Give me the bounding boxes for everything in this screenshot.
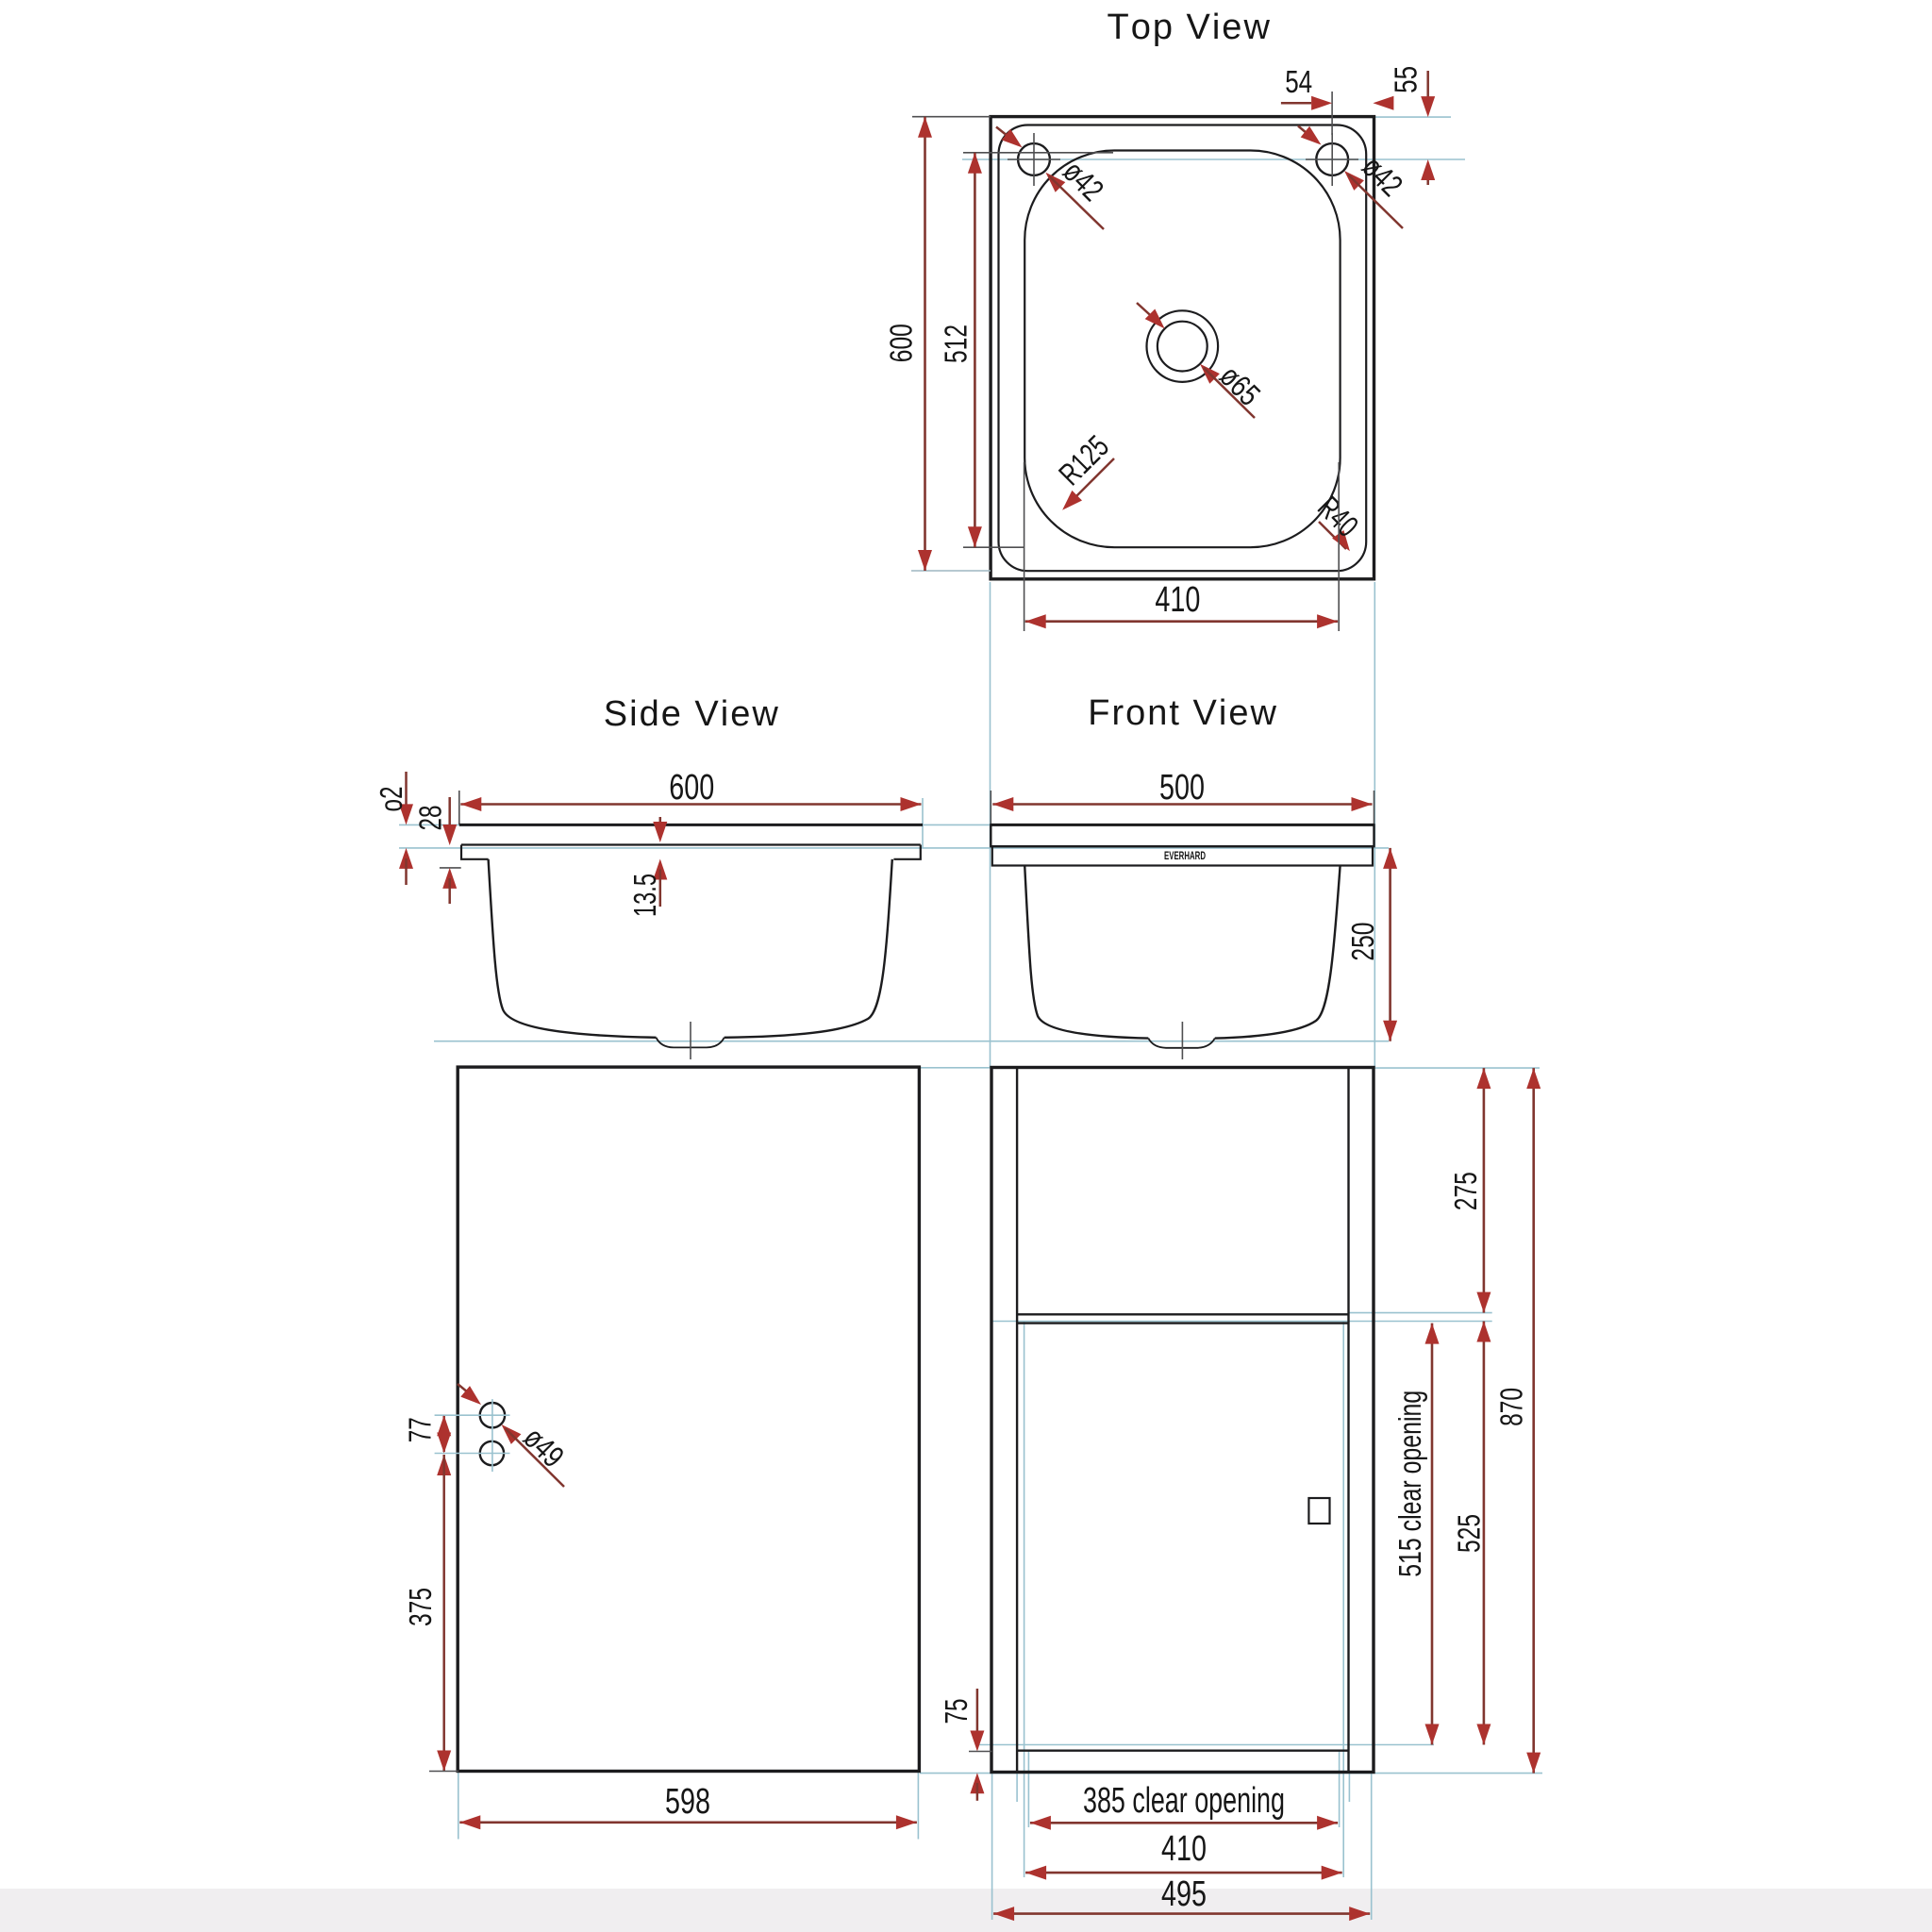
svg-text:Top View: Top View (1107, 8, 1271, 47)
svg-text:600: 600 (669, 768, 714, 808)
svg-text:75: 75 (939, 1699, 974, 1724)
svg-text:525: 525 (1452, 1514, 1487, 1553)
svg-text:55: 55 (1389, 66, 1424, 93)
svg-text:515 clear opening: 515 clear opening (1392, 1391, 1427, 1577)
svg-text:385 clear opening: 385 clear opening (1083, 1781, 1285, 1821)
svg-text:28: 28 (413, 806, 448, 831)
svg-text:13.5: 13.5 (627, 874, 662, 917)
svg-text:600: 600 (884, 324, 919, 362)
svg-text:275: 275 (1448, 1172, 1483, 1210)
svg-text:500: 500 (1159, 768, 1205, 808)
svg-text:375: 375 (403, 1588, 438, 1626)
svg-text:250: 250 (1345, 923, 1380, 961)
svg-text:410: 410 (1155, 580, 1200, 620)
svg-text:870: 870 (1494, 1388, 1529, 1426)
svg-text:Side View: Side View (604, 694, 780, 734)
svg-text:495: 495 (1161, 1874, 1207, 1914)
svg-text:EVERHARD: EVERHARD (1164, 851, 1206, 862)
svg-text:o2: o2 (374, 787, 408, 812)
svg-text:512: 512 (939, 325, 974, 363)
svg-text:54: 54 (1285, 64, 1312, 99)
svg-text:77: 77 (402, 1417, 437, 1442)
svg-text:Front View: Front View (1088, 693, 1278, 733)
svg-text:598: 598 (665, 1782, 710, 1822)
svg-text:410: 410 (1161, 1829, 1207, 1869)
